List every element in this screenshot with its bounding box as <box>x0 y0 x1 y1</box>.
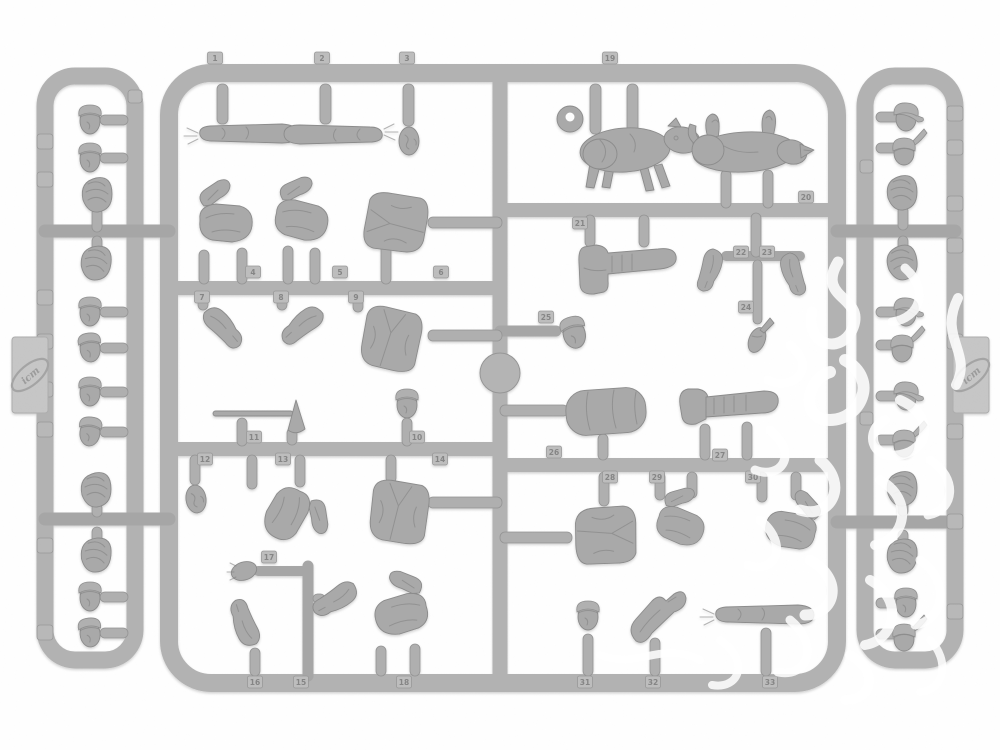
sprue-product-photo: 1234567891011121314151617181920212223242… <box>0 0 1000 750</box>
photo-grain <box>0 0 1000 750</box>
